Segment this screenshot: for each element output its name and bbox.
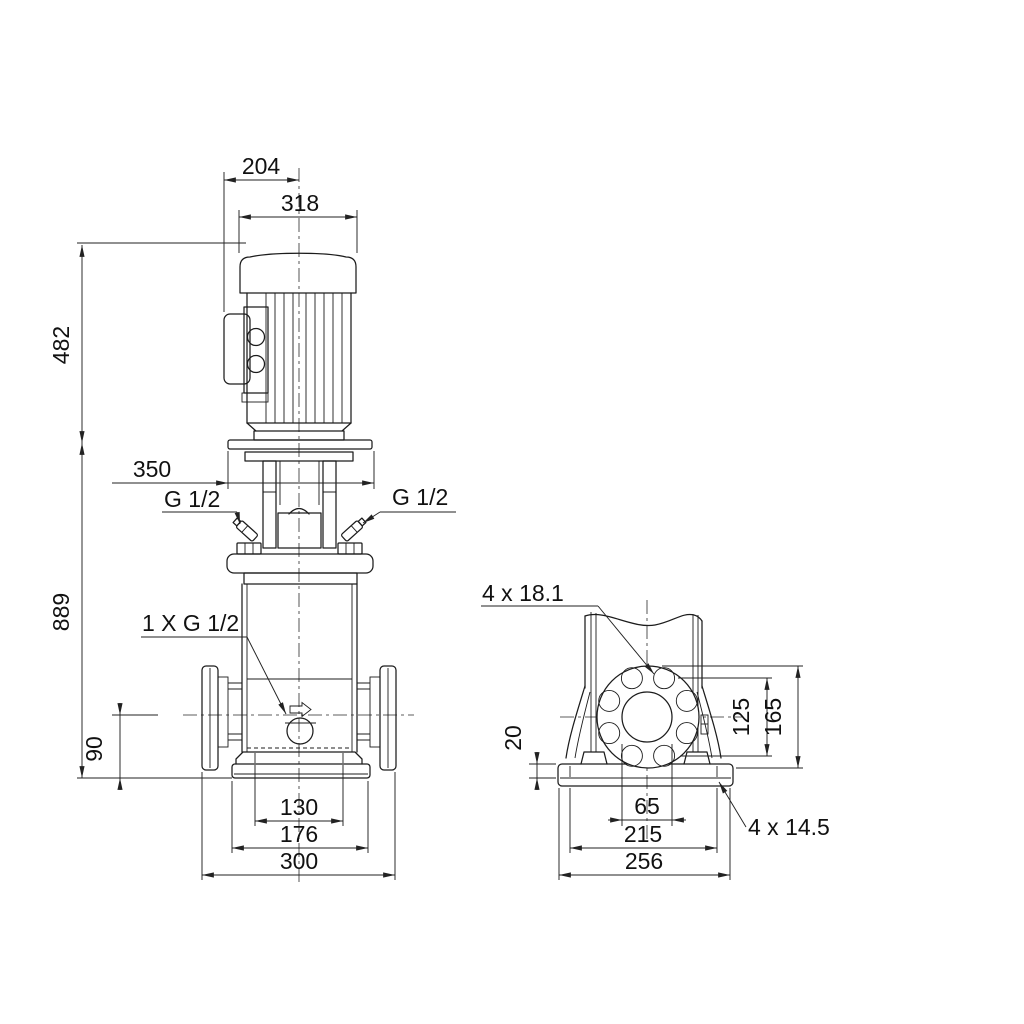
suction-flange bbox=[202, 666, 242, 770]
vent-plug-left bbox=[232, 517, 258, 542]
dim-889-label: 889 bbox=[48, 593, 74, 631]
dim-204-label: 204 bbox=[242, 153, 281, 179]
motor-flange bbox=[228, 440, 372, 461]
pump-dimensional-drawing: 204 318 482 889 90 350 G bbox=[0, 0, 1024, 1024]
terminal-box bbox=[224, 307, 268, 402]
front-view: 204 318 482 889 90 350 G bbox=[48, 153, 456, 882]
vent-plug-right bbox=[341, 517, 367, 542]
centerlines-front bbox=[183, 168, 414, 882]
dim-300-label: 300 bbox=[280, 848, 318, 874]
coupling-section bbox=[232, 461, 367, 554]
motor bbox=[240, 253, 356, 440]
plug-right-label: G 1/2 bbox=[392, 484, 448, 510]
dim-215-label: 215 bbox=[624, 821, 662, 847]
dimensions-front: 204 318 482 889 90 350 G bbox=[48, 153, 456, 880]
dim-318-label: 318 bbox=[281, 190, 319, 216]
drawing-canvas: 204 318 482 889 90 350 G bbox=[0, 0, 1024, 1024]
dim-165-label: 165 bbox=[760, 698, 786, 736]
dim-65-label: 65 bbox=[634, 793, 660, 819]
pump-head-flange bbox=[227, 554, 373, 584]
flange-holes-label: 4 x 18.1 bbox=[482, 580, 564, 606]
hex-bolt-right bbox=[338, 543, 362, 554]
hex-bolt-left bbox=[237, 543, 261, 554]
dim-350-label: 350 bbox=[133, 456, 171, 482]
dim-20-label: 20 bbox=[500, 725, 526, 751]
dim-130-label: 130 bbox=[280, 794, 318, 820]
discharge-flange bbox=[357, 666, 396, 770]
dim-125-label: 125 bbox=[728, 698, 754, 736]
pump-cylinder bbox=[242, 584, 357, 752]
dim-176-label: 176 bbox=[280, 821, 318, 847]
dim-256-label: 256 bbox=[625, 848, 663, 874]
base-front bbox=[232, 752, 370, 778]
side-view: 4 x 18.1 20 125 165 65 bbox=[481, 580, 830, 880]
dim-90-label: 90 bbox=[81, 736, 107, 762]
drain-plug bbox=[285, 703, 316, 745]
plug-left-label: G 1/2 bbox=[164, 486, 220, 512]
base-holes-label: 4 x 14.5 bbox=[748, 814, 830, 840]
dim-482-label: 482 bbox=[48, 326, 74, 364]
port-flange-side bbox=[597, 666, 708, 768]
drain-port-label: 1 X G 1/2 bbox=[142, 610, 239, 636]
